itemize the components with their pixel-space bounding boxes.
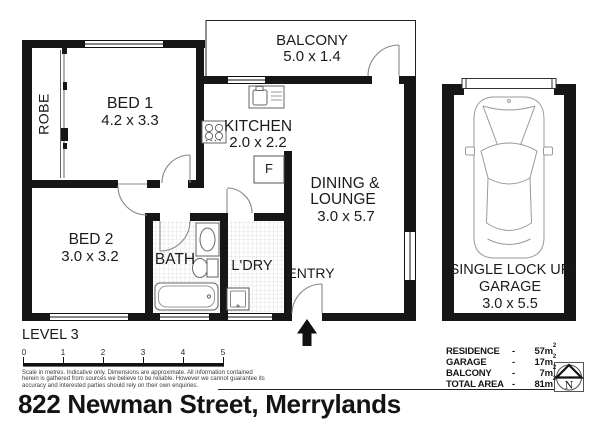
scale-bar xyxy=(23,357,224,367)
floorplan-page: N BALCONY 5.0 x 1.4 BED 1 4.2 x 3.3 ROBE… xyxy=(0,0,600,424)
garage-dims: 3.0 x 5.5 xyxy=(482,297,538,312)
bed1-dims: 4.2 x 3.3 xyxy=(101,113,159,129)
robe-track xyxy=(61,48,69,178)
scale-tick-4: 4 xyxy=(181,348,185,357)
kitchen-label: KITCHEN xyxy=(224,119,292,135)
bed1-door xyxy=(162,155,190,183)
entry-arrow-icon xyxy=(297,319,317,346)
fridge-label: F xyxy=(265,162,273,176)
north-compass-icon: N xyxy=(555,363,584,392)
scale-tick-1: 1 xyxy=(61,348,65,357)
compass-letter: N xyxy=(565,381,574,392)
bathtub-icon xyxy=(155,283,218,310)
robe-label: ROBE xyxy=(37,93,52,135)
scale-tick-3: 3 xyxy=(141,348,145,357)
bath-label: BATH xyxy=(155,252,195,268)
dining-dims: 3.0 x 5.7 xyxy=(317,209,375,225)
scale-tick-2: 2 xyxy=(101,348,105,357)
area-value: 81m2 xyxy=(522,380,556,391)
vanity-icon xyxy=(196,223,219,256)
cooktop-icon xyxy=(202,121,226,143)
address-title: 822 Newman Street, Merrylands xyxy=(18,389,401,420)
scale-tick-0: 0 xyxy=(22,348,26,357)
sink-icon xyxy=(249,86,284,108)
balcony-door xyxy=(368,45,399,76)
car-icon xyxy=(466,97,553,258)
bed2-label: BED 2 xyxy=(69,232,114,248)
area-label: TOTAL AREA xyxy=(446,380,512,391)
laundry-label: L'DRY xyxy=(231,259,272,274)
kitchen-dims: 2.0 x 2.2 xyxy=(229,135,287,151)
disclaimer-line2: herein is gathered from sources we belie… xyxy=(22,376,265,382)
bed1-label: BED 1 xyxy=(107,96,153,113)
dining-label-line1: DINING & xyxy=(311,176,380,192)
entry-door xyxy=(292,284,322,313)
area-row-total: TOTAL AREA - 81m2 xyxy=(446,380,556,391)
balcony-label: BALCONY xyxy=(276,33,348,49)
garage-door xyxy=(462,79,556,89)
disclaimer: Scale in metres. Indicative only. Dimens… xyxy=(22,370,265,389)
garage-label-line1: SINGLE LOCK UP xyxy=(450,263,571,278)
level-label: LEVEL 3 xyxy=(22,328,79,343)
scale-tick-5: 5 xyxy=(221,348,225,357)
laundry-door xyxy=(227,188,252,213)
area-dash: - xyxy=(512,380,522,391)
entry-label: ENTRY xyxy=(287,266,334,281)
laundry-tub-icon xyxy=(227,288,249,310)
bed2-door xyxy=(118,184,147,215)
bed2-dims: 3.0 x 3.2 xyxy=(61,249,119,265)
garage-label-line2: GARAGE xyxy=(479,280,541,295)
balcony-dims: 5.0 x 1.4 xyxy=(283,49,341,65)
dining-label-line2: LOUNGE xyxy=(310,192,375,208)
toilet-icon xyxy=(193,259,219,278)
